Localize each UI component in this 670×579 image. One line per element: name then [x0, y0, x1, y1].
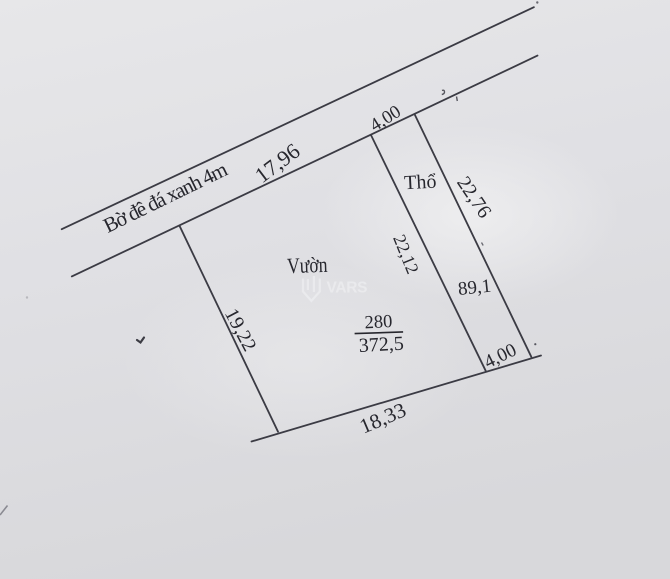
svg-text:Vườn: Vườn: [287, 252, 328, 278]
svg-text:280: 280: [364, 312, 393, 333]
svg-text:Thổ: Thổ: [404, 171, 437, 195]
svg-text:372,5: 372,5: [358, 333, 404, 357]
svg-text:VARS: VARS: [327, 280, 370, 297]
svg-text:89,1: 89,1: [457, 276, 492, 300]
